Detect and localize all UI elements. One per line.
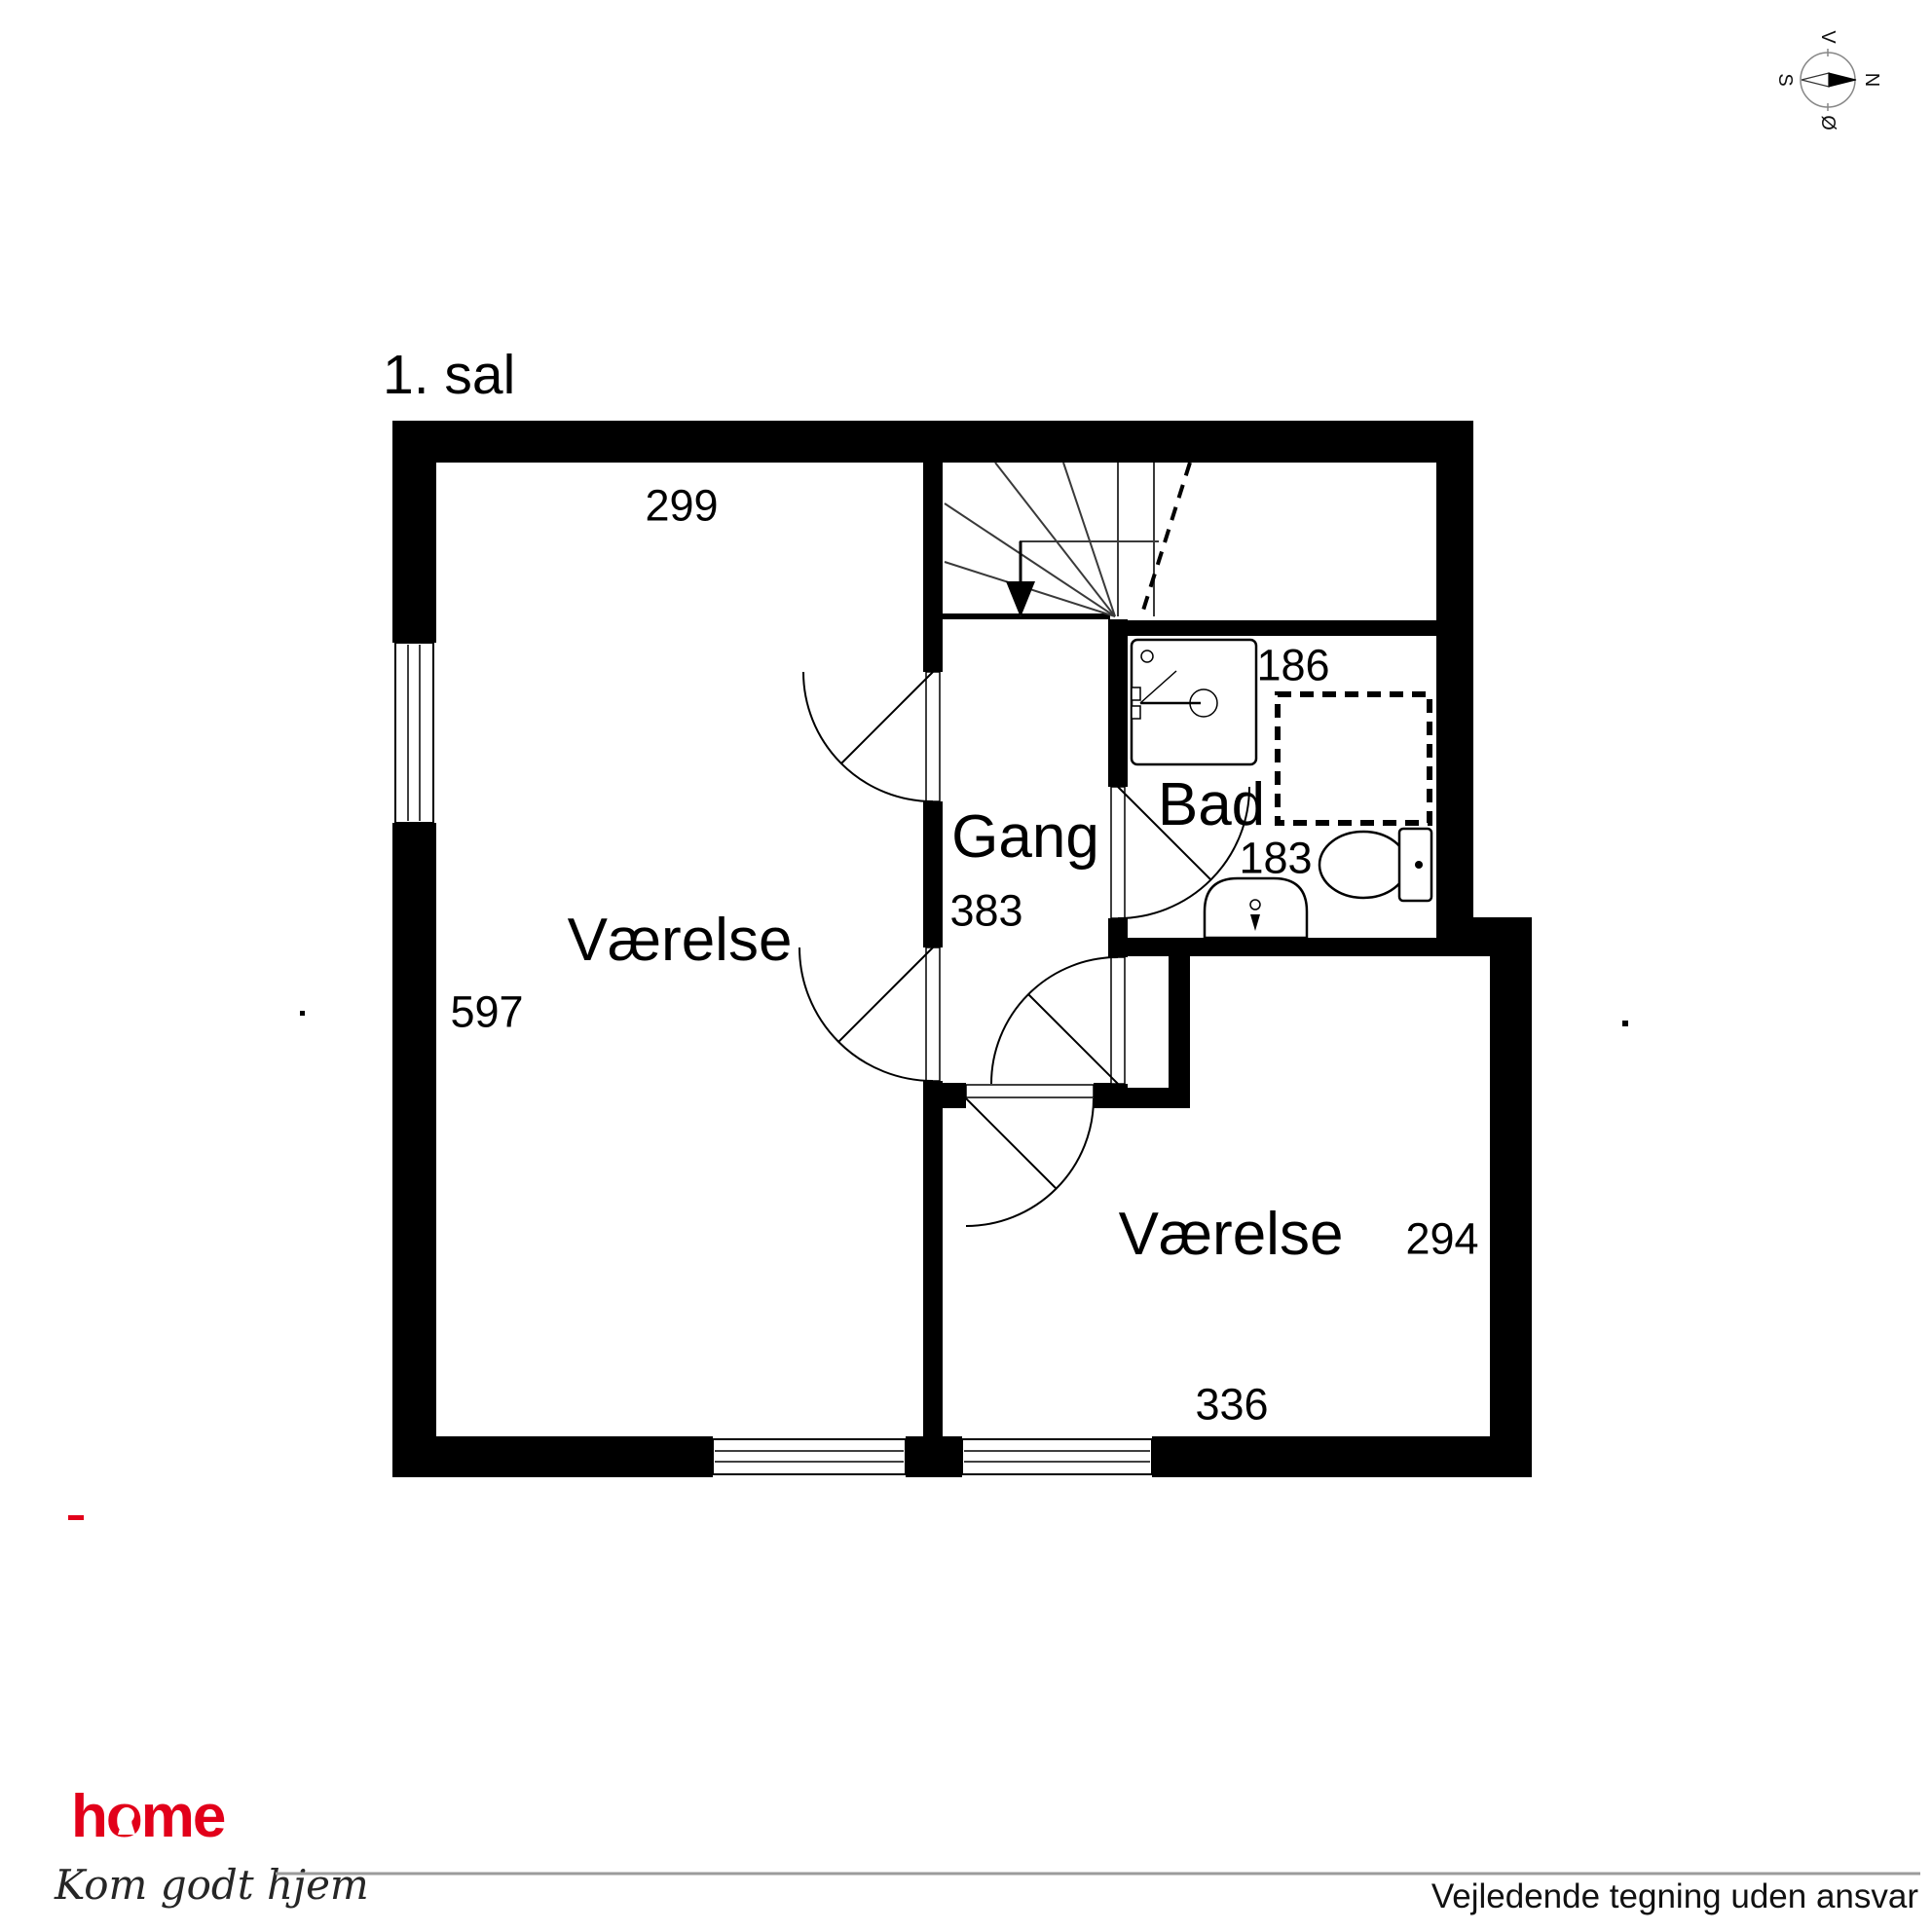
wall-right-upper	[1436, 421, 1473, 954]
wall-gang-left-b	[923, 801, 943, 947]
wall-top	[392, 421, 1473, 463]
dot-right	[1622, 1021, 1628, 1026]
wall-gang-left-a	[923, 458, 943, 672]
compass-needle-tail	[1802, 73, 1829, 87]
stair-direction-arrow	[1006, 541, 1035, 617]
door-gang-niche	[991, 957, 1125, 1084]
wall-bottom-seg3	[1152, 1436, 1532, 1477]
wall-left-upper	[392, 421, 436, 643]
compass-south-label: S	[1774, 73, 1796, 86]
dim-room2-336: 336	[1195, 1383, 1268, 1427]
wall-right-lower	[1490, 917, 1532, 1477]
toilet-icon	[1319, 829, 1431, 901]
dim-bad-183: 183	[1239, 836, 1312, 880]
wall-bad-left-a	[1108, 619, 1128, 787]
windows	[395, 643, 1152, 1474]
stair-cut-line	[1141, 463, 1190, 616]
compass-rose: N S V Ø	[1774, 30, 1882, 130]
window-bottom-left	[713, 1439, 906, 1474]
compass-needle-head	[1829, 73, 1856, 87]
red-dash	[68, 1515, 84, 1520]
wall-bottom-seg1	[392, 1436, 713, 1477]
wall-bad-top	[1108, 620, 1436, 636]
brand-name: home	[71, 1783, 225, 1850]
door-gang-room1-upper	[803, 672, 940, 801]
wall-niche-right	[1169, 956, 1190, 1108]
wall-left-lower	[392, 823, 436, 1477]
wall-bad-bottom	[1108, 938, 1490, 956]
shower-icon	[1132, 640, 1256, 764]
wall-gang-left-c	[923, 1081, 943, 1438]
dim-top-299: 299	[645, 484, 718, 528]
wall-gang-bottom-b	[1094, 1083, 1113, 1108]
dim-room2-294: 294	[1405, 1217, 1478, 1261]
room-label-vaerelse-bottom: Værelse	[1119, 1205, 1344, 1265]
sink-icon	[1205, 878, 1307, 938]
room-label-vaerelse-left: Værelse	[568, 910, 793, 971]
compass-north-label: N	[1861, 73, 1882, 87]
door-gang-room1-lower	[799, 947, 940, 1081]
stair-bottom-edge	[943, 613, 1110, 619]
dot-left	[300, 1011, 305, 1016]
wall-gang-bottom-a	[923, 1083, 966, 1108]
window-left	[395, 643, 433, 823]
brand-tagline: Kom godt hjem	[54, 1861, 369, 1909]
floorplan-page: 1. sal	[0, 0, 1932, 1932]
floorplan-drawing: N S V Ø home Kom godt hjem	[0, 0, 1932, 1932]
dim-gang-383: 383	[949, 889, 1022, 933]
compass-west-label: V	[1817, 30, 1839, 44]
disclaimer-text: Vejledende tegning uden ansvar	[1431, 1877, 1918, 1916]
room-label-bad: Bad	[1158, 775, 1265, 836]
wall-bottom-seg2	[906, 1436, 962, 1477]
walls	[392, 421, 1532, 1477]
page-title: 1. sal	[383, 343, 515, 407]
compass-east-label: Ø	[1817, 115, 1839, 130]
stairs	[945, 463, 1190, 617]
door-gang-room2	[966, 1085, 1094, 1226]
brand-logo: home Kom godt hjem	[54, 1783, 369, 1909]
dim-left-597: 597	[450, 990, 523, 1034]
room-label-gang: Gang	[951, 807, 1099, 868]
dim-bad-186: 186	[1256, 644, 1329, 687]
shower-niche-dashed	[1278, 694, 1430, 823]
window-bottom-right	[962, 1439, 1152, 1474]
